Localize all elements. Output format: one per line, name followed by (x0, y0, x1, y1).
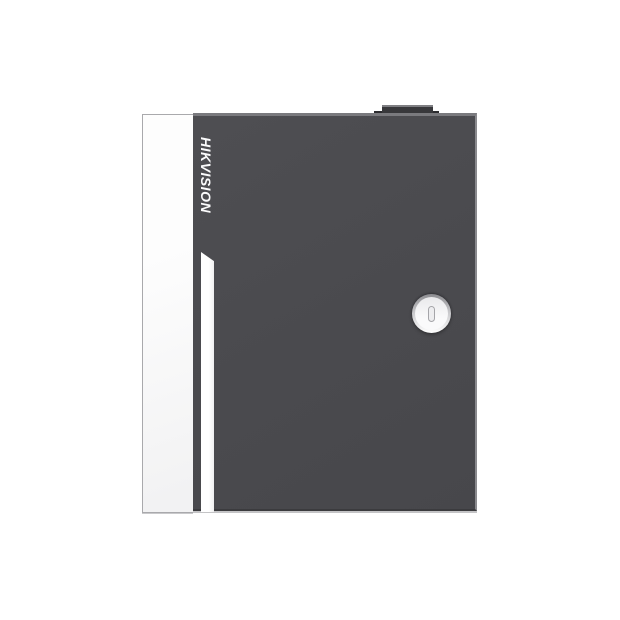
lock-face (415, 297, 448, 330)
keyhole-icon (428, 306, 435, 322)
cam-lock (412, 294, 451, 333)
brand-logo: HIKVISION (198, 137, 214, 213)
enclosure-side-panel (142, 114, 193, 513)
enclosure-door: HIKVISION (193, 113, 477, 511)
product-photo: HIKVISION (0, 0, 620, 620)
accent-stripe (201, 252, 214, 512)
